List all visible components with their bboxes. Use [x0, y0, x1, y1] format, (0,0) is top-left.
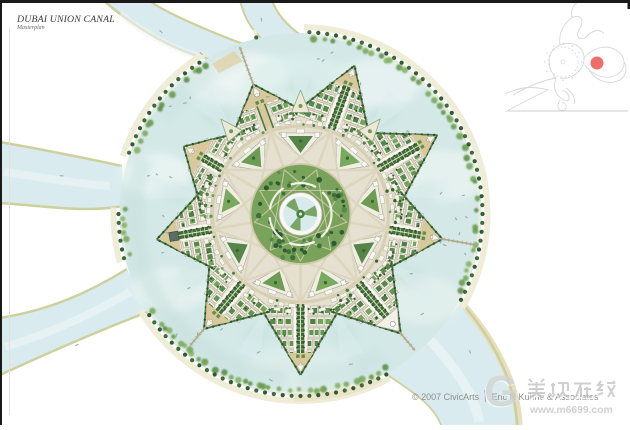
svg-text:DUBAI UNION CANAL: DUBAI UNION CANAL: [16, 14, 115, 25]
svg-text:Masterplan: Masterplan: [16, 25, 45, 31]
svg-text:G: G: [484, 367, 518, 416]
svg-text:www.m6699.com: www.m6699.com: [529, 405, 613, 416]
